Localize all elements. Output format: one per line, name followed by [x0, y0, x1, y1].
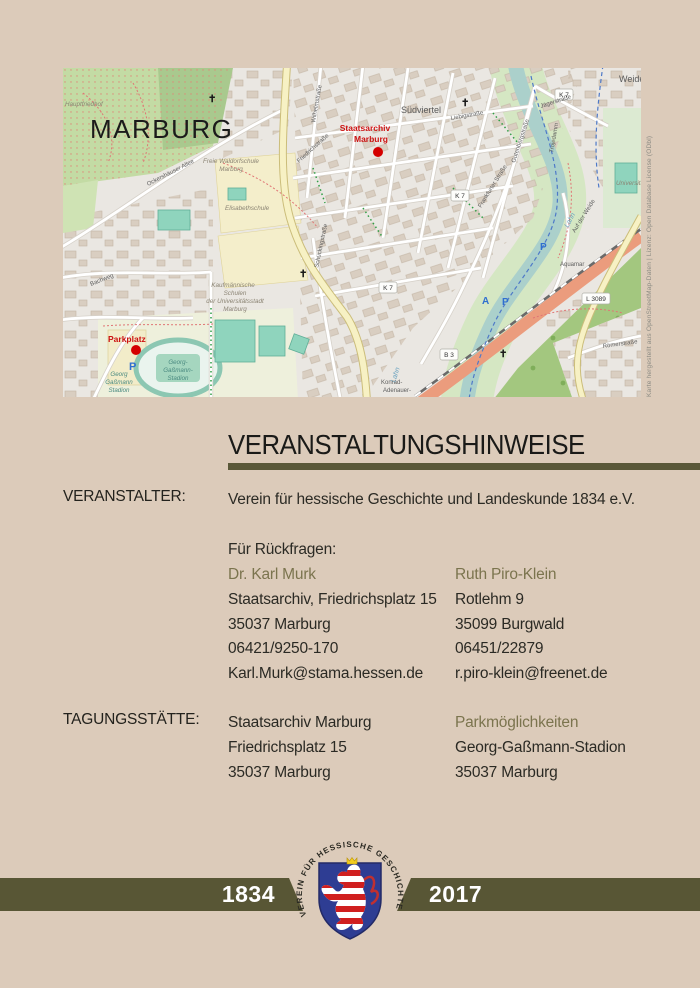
- parking-icon: P: [540, 242, 547, 253]
- parking-name: Georg-Gaßmann-Stadion: [455, 736, 626, 761]
- map-label-kauf2: Schulen: [224, 290, 247, 297]
- sports-field: [158, 210, 190, 230]
- map-label-kauf4: Marburg: [223, 306, 247, 313]
- lion-crown: [347, 858, 357, 865]
- pool-area: [215, 320, 255, 362]
- map-label-stadion2: Gaßmann-: [163, 367, 193, 374]
- church-icon: ✝: [461, 98, 469, 109]
- veranstalter-label: VERANSTALTER:: [63, 488, 186, 506]
- contact1-email: Karl.Murk@stama.hessen.de: [228, 662, 437, 687]
- venue-block: Staatsarchiv Marburg Friedrichsplatz 15 …: [228, 711, 371, 785]
- sports-field-small: [228, 188, 246, 200]
- seal-svg: VEREIN FÜR HESSISCHE GESCHICHTE UND LAND…: [288, 833, 412, 957]
- contact2-address: Rotlehm 9: [455, 588, 607, 613]
- map-label-universitaet: Universität: [616, 180, 641, 187]
- map-label-parkplatz: Parkplatz: [108, 334, 146, 344]
- map-label-elisabethschule: Elisabethschule: [225, 205, 270, 212]
- current-year: 2017: [429, 881, 482, 907]
- map-attribution: Karte hergestellt aus OpenStreetMap-Date…: [646, 67, 657, 397]
- parkplatz-marker-dot: [131, 345, 141, 355]
- map-label-waldorfschule2: Marburg: [219, 166, 243, 173]
- contact1-city: 35037 Marburg: [228, 613, 437, 638]
- parking-title: Parkmöglichkeiten: [455, 711, 626, 736]
- staatsarchiv-marker-dot: [373, 147, 383, 157]
- map-label-kauf3: der Universitätsstadt: [206, 298, 264, 305]
- flyer-page: K 7 K 7 K 7 B 3 L 3089 ✝ ✝ ✝ ✝ A P P P M…: [0, 0, 700, 988]
- venue-city: 35037 Marburg: [228, 761, 371, 786]
- map-label-stadion3: Stadion: [168, 375, 190, 382]
- map-label-konrad: Konrad-: [381, 380, 402, 386]
- campsite-icon: A: [482, 296, 489, 307]
- parking-icon: P: [502, 297, 509, 308]
- map-label-marburg: MARBURG: [90, 114, 233, 144]
- church-icon: ✝: [299, 269, 307, 280]
- map-label-georg1: Georg: [110, 371, 128, 378]
- map-label-hauptfriedhof: Hauptfriedhof: [65, 101, 104, 108]
- contact2-name: Ruth Piro-Klein: [455, 563, 607, 588]
- city-map: K 7 K 7 K 7 B 3 L 3089 ✝ ✝ ✝ ✝ A P P P M…: [63, 68, 641, 397]
- tagungsstaette-label: TAGUNGSSTÄTTE:: [63, 711, 199, 729]
- veranstalter-value: Verein für hessische Geschichte und Land…: [228, 488, 635, 513]
- court-area: [259, 326, 285, 356]
- contact2-email: r.piro-klein@freenet.de: [455, 662, 607, 687]
- map-label-staatsarchiv: Staatsarchiv: [340, 123, 391, 133]
- page-title: VERANSTALTUNGSHINWEISE: [228, 429, 585, 461]
- contact1-phone: 06421/9250-170: [228, 637, 437, 662]
- association-seal: VEREIN FÜR HESSISCHE GESCHICHTE UND LAND…: [288, 833, 412, 957]
- contact2-block: Ruth Piro-Klein Rotlehm 9 35099 Burgwald…: [455, 563, 607, 687]
- tree: [531, 366, 536, 371]
- map-label-aquamar: Aquamar: [560, 262, 584, 268]
- map-label-stadion1: Georg-: [168, 359, 187, 366]
- badge-k7-2: K 7: [455, 193, 465, 200]
- parking-city: 35037 Marburg: [455, 761, 626, 786]
- map-label-suedviertel: Südviertel: [401, 105, 441, 115]
- venue-street: Friedrichsplatz 15: [228, 736, 371, 761]
- venue-name: Staatsarchiv Marburg: [228, 711, 371, 736]
- title-rule: [228, 463, 700, 470]
- contact2-phone: 06451/22879: [455, 637, 607, 662]
- church-icon: ✝: [499, 349, 507, 360]
- map-label-waldorfschule: Freie Waldorfschule: [203, 158, 259, 165]
- university-court: [615, 163, 637, 193]
- map-label-weide: Weide: [619, 74, 641, 84]
- church-icon: ✝: [208, 94, 216, 105]
- badge-k7-3: K 7: [383, 285, 393, 292]
- map-label-georg3: Stadion: [109, 387, 131, 394]
- contact1-name: Dr. Karl Murk: [228, 563, 437, 588]
- rueckfragen-heading: Für Rückfragen:: [228, 538, 336, 563]
- founding-year: 1834: [222, 881, 275, 907]
- footer-bar-left: 1834: [0, 878, 303, 911]
- badge-b3: B 3: [444, 352, 454, 359]
- contact2-city: 35099 Burgwald: [455, 613, 607, 638]
- map-label-adenauer: Adenauer-: [383, 388, 411, 394]
- map-label-staatsarchiv2: Marburg: [354, 134, 388, 144]
- badge-l3089: L 3089: [586, 296, 606, 303]
- map-label-kauf1: Kaufmännische: [211, 282, 255, 289]
- parking-icon-stadium: P: [129, 361, 136, 373]
- parking-block: Parkmöglichkeiten Georg-Gaßmann-Stadion …: [455, 711, 626, 785]
- footer-bar-right: 2017: [397, 878, 700, 911]
- tree: [561, 381, 566, 386]
- tree: [551, 336, 556, 341]
- map-canvas: K 7 K 7 K 7 B 3 L 3089 ✝ ✝ ✝ ✝ A P P P M…: [63, 68, 641, 397]
- contact1-block: Dr. Karl Murk Staatsarchiv, Friedrichspl…: [228, 563, 437, 687]
- map-label-georg2: Gaßmann: [105, 379, 133, 386]
- contact1-address: Staatsarchiv, Friedrichsplatz 15: [228, 588, 437, 613]
